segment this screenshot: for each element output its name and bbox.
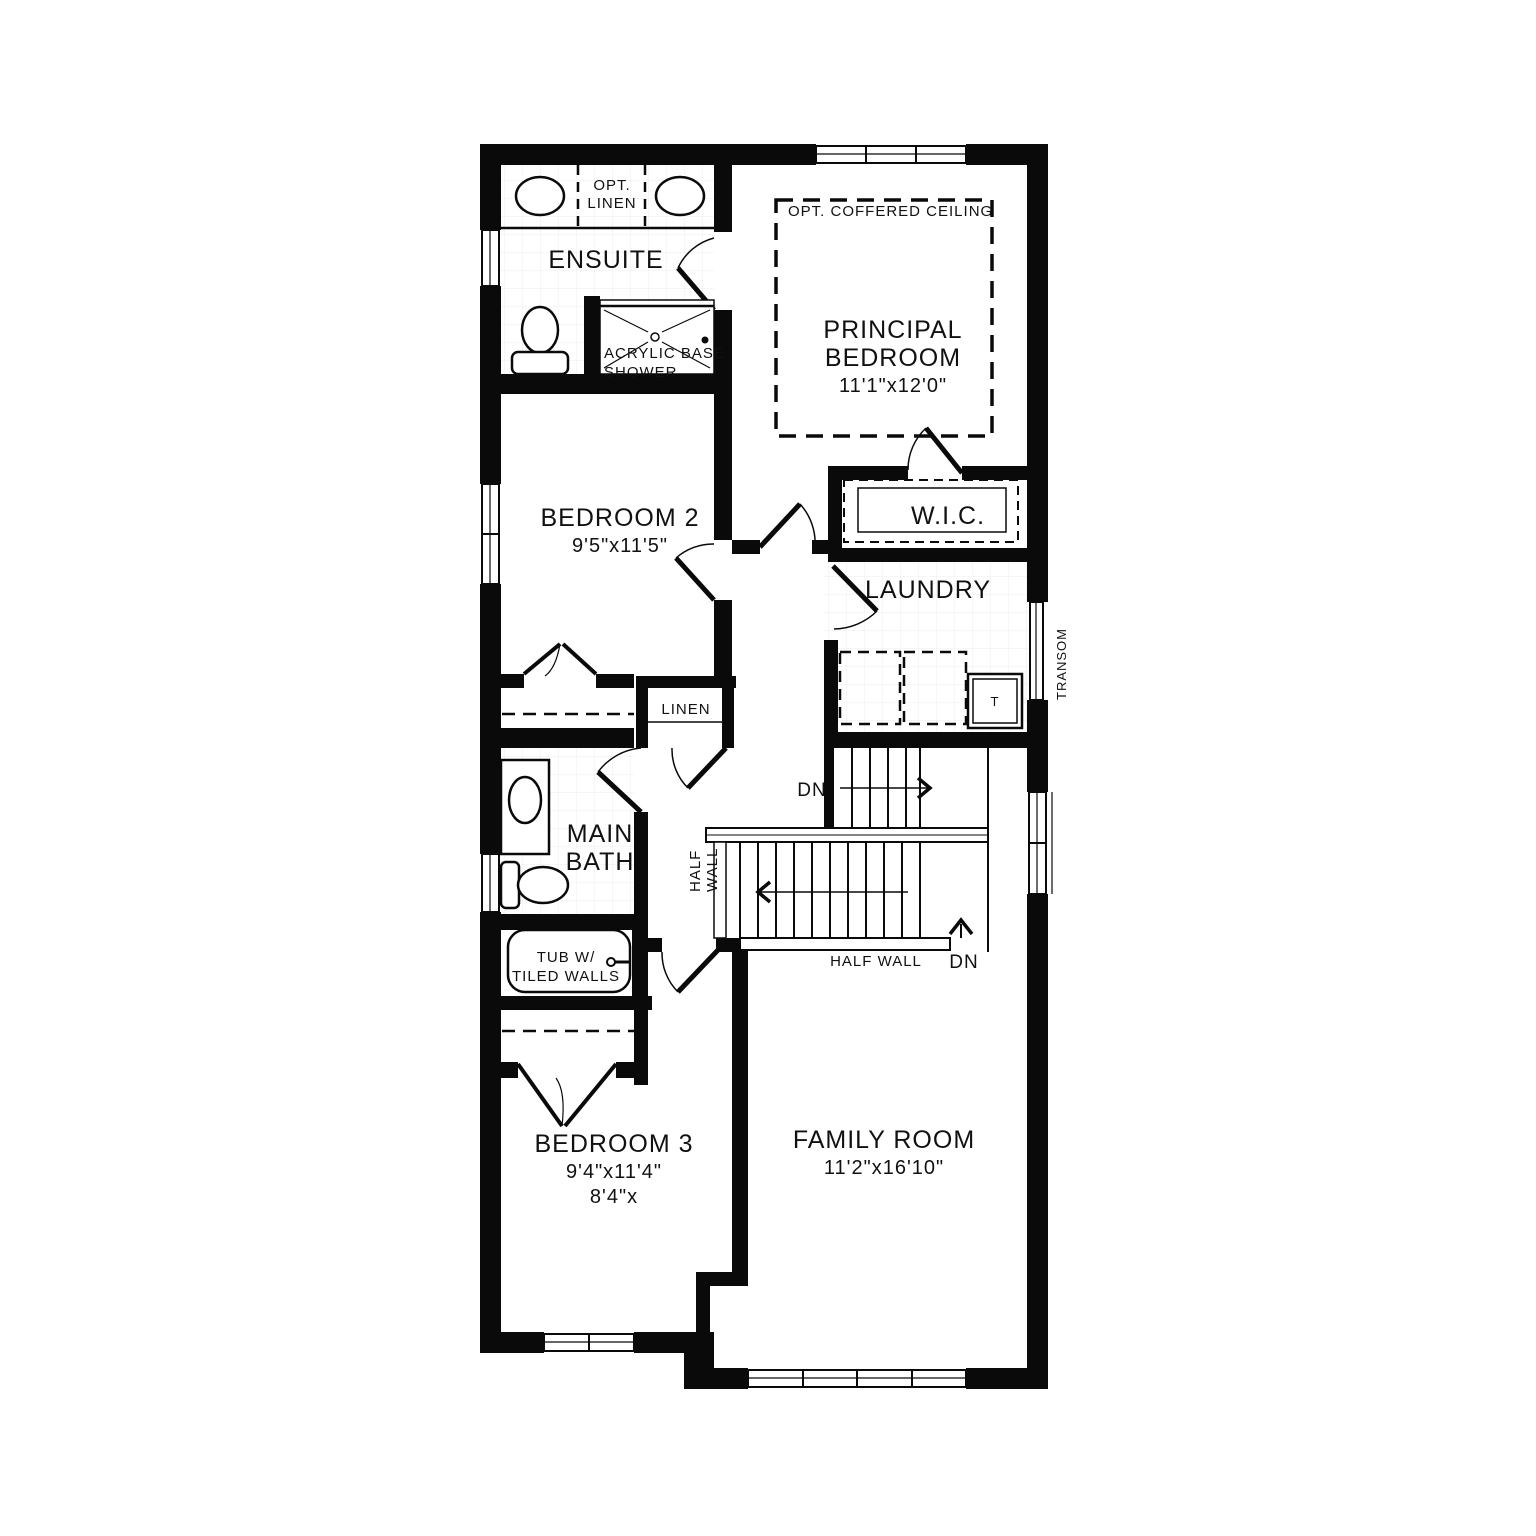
main-bath-label-1: MAIN: [567, 820, 634, 848]
transom-label: TRANSOM: [1054, 628, 1069, 700]
wall-left-3: [480, 584, 501, 854]
sink-left-icon: [516, 177, 564, 215]
wall-wic-top-right: [962, 466, 1028, 480]
shower-door-handle: [702, 337, 708, 343]
dn-upper-label: DN: [797, 780, 826, 801]
wic-label: W.I.C.: [911, 502, 985, 530]
family-room-label: FAMILY ROOM: [793, 1126, 975, 1154]
half-wall-vert-group: HALF WALL: [687, 848, 721, 892]
wall-bottom-family-right: [966, 1368, 1048, 1389]
bath-vanity: [501, 760, 549, 854]
dn-lower-label: DN: [949, 952, 978, 973]
shower-label-1: ACRYLIC BASE: [604, 345, 725, 362]
stairs-half-wall-lower: [740, 938, 950, 950]
bath-sink-icon: [509, 777, 541, 823]
page-background: [0, 0, 1536, 1536]
window-bedroom2-left: [482, 484, 499, 584]
wall-tub-top: [496, 914, 648, 930]
wall-linen-left: [636, 676, 648, 748]
linen-label: LINEN: [661, 701, 710, 718]
sink-right-icon: [656, 177, 704, 215]
wall-left-2: [480, 286, 501, 484]
half-wall-horiz-label: HALF WALL: [830, 953, 922, 970]
opt-linen-label-2: LINEN: [587, 195, 636, 212]
wall-bed3-closet-stub-left: [500, 1062, 518, 1078]
wall-top-left: [480, 144, 816, 165]
principal-label-2: BEDROOM: [825, 344, 961, 372]
wall-wic-bottom: [828, 548, 1028, 562]
wall-laundry-left: [824, 640, 838, 748]
wall-bed2-closet-stub-right: [596, 674, 634, 688]
coffered-ceiling-label: OPT. COFFERED CEILING: [788, 203, 993, 220]
floor-plan-page: { "plan_title": "Second Floor Plan", "co…: [0, 0, 1536, 1536]
wall-laundry-bottom: [824, 732, 1028, 748]
wall-divider-bed2: [714, 600, 732, 680]
laundry-label: LAUNDRY: [865, 576, 991, 604]
wall-tub-bottom: [496, 996, 652, 1010]
wall-right-3: [1027, 894, 1048, 1388]
bedroom3-dims: 9'4"x11'4": [566, 1161, 662, 1183]
wall-linen-right: [722, 676, 734, 748]
family-room-dims: 11'2"x16'10": [824, 1157, 944, 1179]
bedroom3-label: BEDROOM 3: [534, 1130, 693, 1158]
transom-label-group: TRANSOM: [1054, 628, 1069, 700]
half-wall-vert-1: HALF: [687, 850, 704, 892]
wall-shower-stub: [584, 296, 600, 376]
bedroom2-dims: 9'5"x11'5": [572, 535, 668, 557]
tub-label-2: TILED WALLS: [512, 968, 620, 985]
window-transom-right: [1030, 602, 1043, 700]
wall-bottom-bed3-left: [480, 1332, 544, 1353]
window-principal-top: [816, 146, 966, 163]
wall-divider-jog-h: [696, 1272, 748, 1286]
laundry-tub-label: T: [991, 694, 1000, 709]
ensuite-label: ENSUITE: [548, 246, 663, 274]
wall-bottom-family-left: [684, 1368, 748, 1389]
window-bath-left: [482, 854, 499, 912]
wall-linen-top: [636, 676, 736, 688]
wall-wic-left: [828, 466, 842, 562]
wall-right-2: [1027, 700, 1048, 792]
wall-divider-jog-v: [696, 1286, 710, 1336]
wall-bed3-door-stub: [648, 938, 662, 952]
opt-linen-label-1: OPT.: [593, 177, 630, 194]
wall-divider-ensuite-1: [714, 164, 732, 232]
floor-plan-drawing: ENSUITE OPT. LINEN ACRYLIC BASE SHOWER O…: [0, 0, 1536, 1536]
wall-bed3-closet-stub-right: [616, 1062, 648, 1078]
tub-label-1: TUB W/: [537, 949, 596, 966]
wall-principal-entry-left: [732, 540, 760, 554]
wall-bed2-closet-stub-left: [496, 674, 524, 688]
wall-bed2-closet-bottom: [500, 728, 634, 748]
window-family-bottom: [748, 1370, 966, 1387]
shower: [600, 300, 714, 374]
wall-tub-right: [632, 914, 648, 1010]
wall-divider-bed3-family: [732, 938, 748, 1272]
wall-right-1: [1027, 144, 1048, 602]
window-ensuite-left: [482, 230, 499, 286]
wall-left-1: [480, 144, 501, 230]
half-wall-vert-2: WALL: [704, 848, 721, 892]
main-bath-label-2: BATH: [566, 848, 635, 876]
wall-bath-right: [634, 812, 648, 916]
bedroom3-dims2: 8'4"x: [590, 1186, 638, 1208]
principal-dims: 11'1"x12'0": [839, 375, 947, 397]
window-bedroom3-bottom: [544, 1334, 634, 1351]
shower-label-2: SHOWER: [604, 364, 678, 381]
bedroom2-label: BEDROOM 2: [540, 504, 699, 532]
principal-label-1: PRINCIPAL: [823, 316, 962, 344]
wall-left-4: [480, 912, 501, 1352]
